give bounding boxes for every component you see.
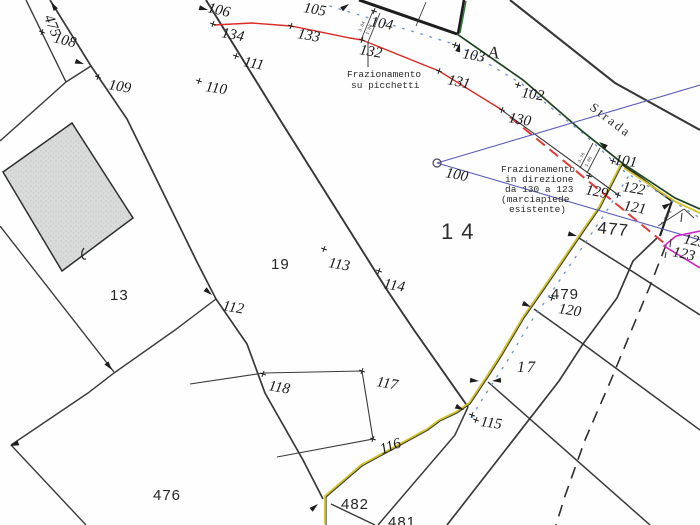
svg-text:14: 14: [441, 219, 481, 244]
svg-text:13: 13: [110, 287, 129, 304]
svg-text:su picchetti: su picchetti: [351, 80, 420, 91]
svg-text:19: 19: [271, 256, 290, 273]
svg-text:477: 477: [597, 218, 630, 240]
svg-text:101: 101: [613, 152, 638, 171]
svg-text:115: 115: [479, 414, 503, 433]
svg-text:479: 479: [551, 286, 579, 303]
svg-text:Frazionamento: Frazionamento: [347, 69, 421, 80]
svg-text:482: 482: [341, 496, 369, 513]
svg-text:esistente): esistente): [509, 204, 566, 215]
svg-text:481: 481: [388, 514, 416, 525]
svg-text:476: 476: [153, 487, 181, 504]
svg-text:110: 110: [204, 79, 228, 98]
svg-text:17: 17: [517, 359, 537, 376]
